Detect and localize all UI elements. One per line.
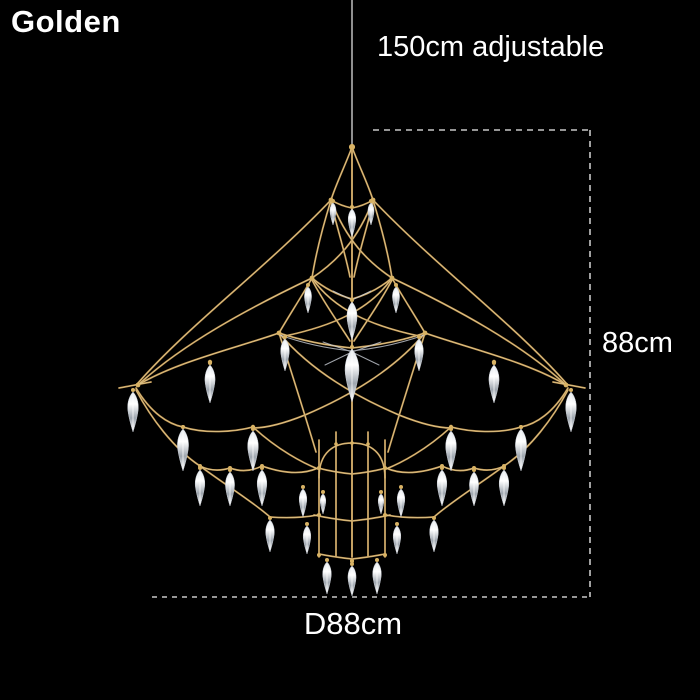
- chandelier-illustration: [0, 0, 700, 700]
- fixture-height-label: 88cm: [602, 328, 673, 360]
- diameter-label: D88cm: [304, 607, 402, 641]
- adjustable-height-label: 150cm adjustable: [377, 32, 604, 64]
- product-image: Golden 150cm adjustable 88cm D88cm: [0, 0, 700, 700]
- variant-label: Golden: [11, 5, 121, 39]
